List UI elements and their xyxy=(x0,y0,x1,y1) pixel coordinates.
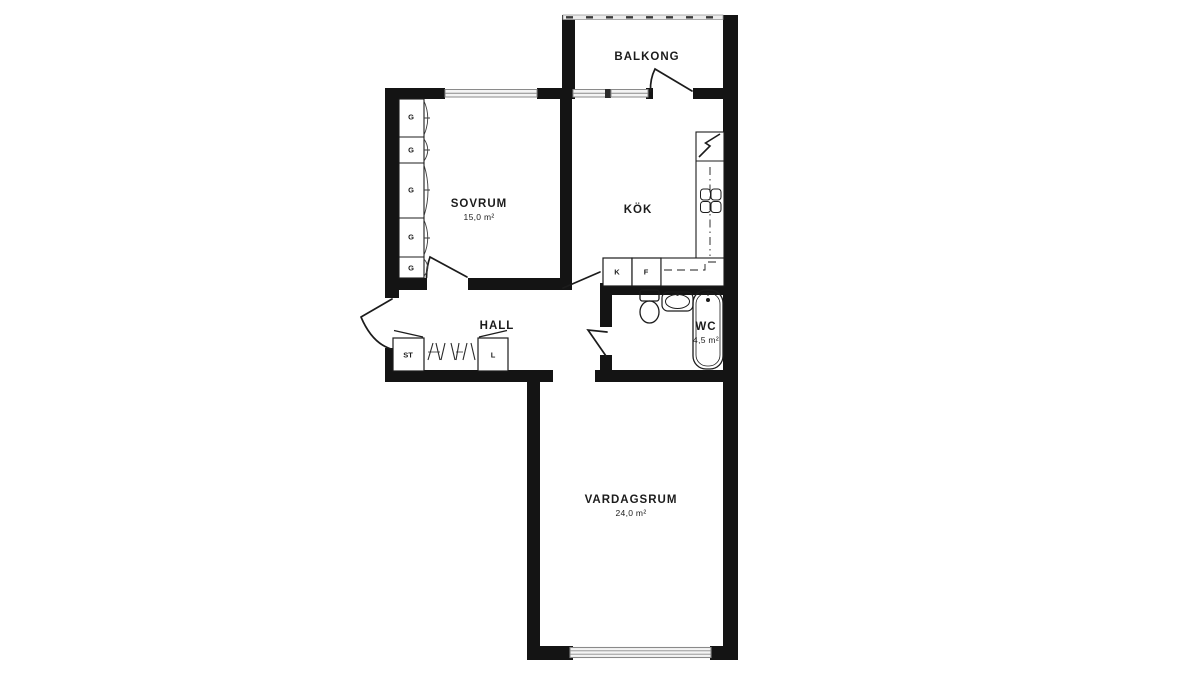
room-name: HALL xyxy=(480,319,515,333)
room-name: SOVRUM xyxy=(451,197,507,211)
wardrobe-label-2: G xyxy=(408,145,414,154)
wardrobe-label-4: G xyxy=(408,232,414,241)
linen-closet-label: L xyxy=(491,350,496,359)
wardrobe-door-swings xyxy=(424,101,430,276)
room-name: VARDAGSRUM xyxy=(585,493,678,507)
floor-plan-canvas: BALKONG SOVRUM 15,0 m² KÖK HALL WC 4,5 m… xyxy=(0,0,1200,675)
room-label-hall: HALL xyxy=(480,319,515,333)
wall-livingroom-top xyxy=(595,370,738,382)
kitchen-fixtures xyxy=(603,132,724,286)
wall-livingroom-bottom-left xyxy=(527,646,573,660)
room-area: 15,0 m² xyxy=(451,212,507,223)
wall-livingroom-left xyxy=(527,370,540,660)
wall-left-upper xyxy=(385,88,399,298)
balcony-door xyxy=(650,69,692,91)
fridge-label: K xyxy=(614,267,619,276)
wall-balcony-left xyxy=(562,15,575,99)
windows xyxy=(445,15,723,658)
wardrobe-label-3: G xyxy=(408,185,414,194)
wardrobe-label-1: G xyxy=(408,112,414,121)
room-name: BALKONG xyxy=(614,50,679,64)
kitchen-window xyxy=(573,89,648,98)
room-label-kok: KÖK xyxy=(624,203,653,217)
floor-plan-drawing xyxy=(0,0,1200,675)
bedroom-window xyxy=(445,90,537,98)
wall-hall-top-right xyxy=(468,278,572,290)
wall-wc-left-upper xyxy=(600,283,612,327)
wardrobe-cabinets xyxy=(399,99,430,278)
cleaning-closet-door xyxy=(394,331,423,338)
wall-livingroom-bottom-right xyxy=(710,646,738,660)
room-name: KÖK xyxy=(624,203,653,217)
livingroom-window xyxy=(570,648,711,658)
freezer-label: F xyxy=(644,267,649,276)
walls xyxy=(385,15,738,660)
bedroom-door xyxy=(427,257,468,278)
wardrobe-label-5: G xyxy=(408,263,414,272)
room-label-wc: WC 4,5 m² xyxy=(693,320,719,346)
wall-right xyxy=(723,15,738,660)
wall-bedroom-kitchen-divider xyxy=(560,88,572,290)
wall-hall-top-left xyxy=(385,278,427,290)
room-label-sovrum: SOVRUM 15,0 m² xyxy=(451,197,507,223)
room-label-balkong: BALKONG xyxy=(614,50,679,64)
entry-door xyxy=(361,299,392,349)
room-label-vardagsrum: VARDAGSRUM 24,0 m² xyxy=(585,493,678,519)
room-area: 4,5 m² xyxy=(693,335,719,346)
coat-hanger-rail xyxy=(428,343,475,360)
balcony-railing xyxy=(563,15,723,20)
room-name: WC xyxy=(693,320,719,334)
room-area: 24,0 m² xyxy=(585,508,678,519)
wc-door xyxy=(588,330,607,356)
cleaning-closet-label: ST xyxy=(403,350,413,359)
